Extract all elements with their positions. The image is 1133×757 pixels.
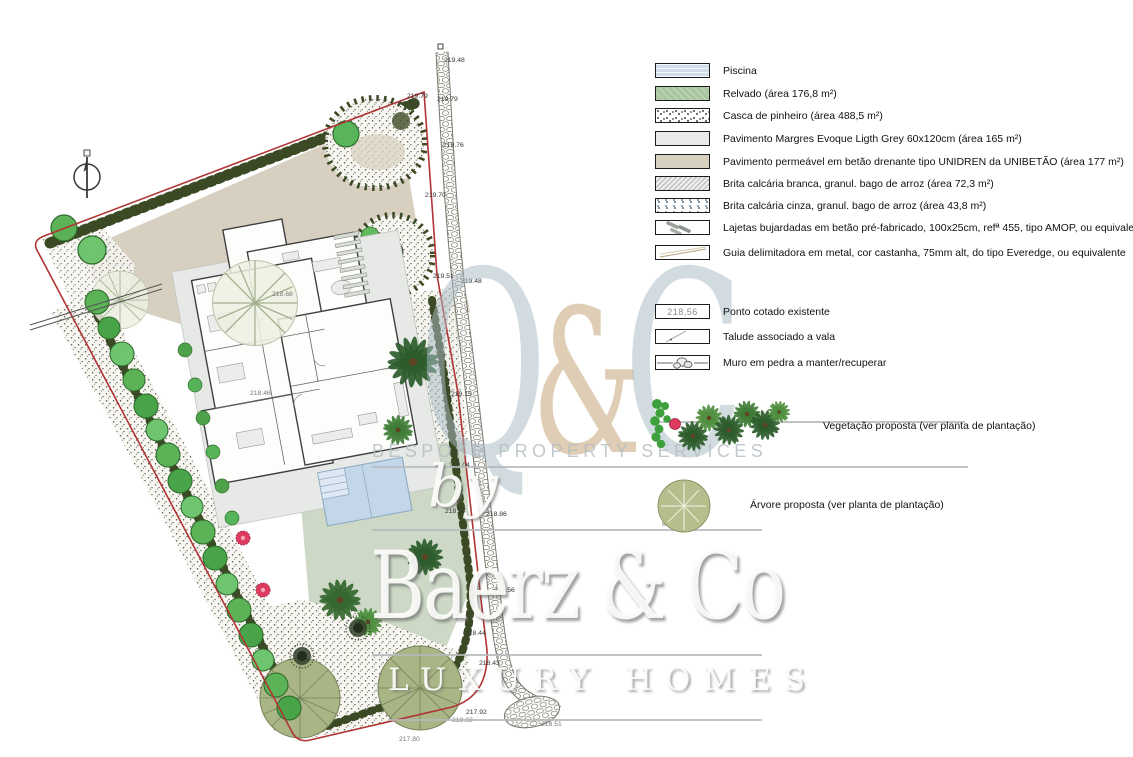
spot-elevation: 217.80	[399, 736, 420, 743]
legend-row-casca: Casca de pinheiro (área 488,5 m²)	[655, 107, 883, 124]
spot-elevation: 219.51	[433, 273, 454, 280]
legend-row-margres: Pavimento Margres Evoque Ligth Grey 60x1…	[655, 130, 1022, 147]
flower-icon	[256, 583, 270, 597]
palm-cluster-icon	[674, 396, 795, 454]
legend-label: Guia delimitadora em metal, cor castanha…	[723, 247, 1126, 259]
swatch-unidren	[655, 154, 710, 169]
spot-elevation: 219.70	[425, 192, 446, 199]
spot-elevation: 219.15	[451, 391, 472, 398]
site-plan-sheet: { "legend": { "materials": [ {"swatch": …	[0, 0, 1133, 757]
legend-label: Brita calcária cinza, granul. bago de ar…	[723, 200, 986, 212]
swatch-guia	[655, 245, 710, 260]
spot-elevation: 218.86	[486, 511, 507, 518]
swatch-piscina	[655, 63, 710, 78]
legend-label: Relvado (área 176,8 m²)	[723, 88, 837, 100]
spot-elevation: 219.48	[461, 278, 482, 285]
legend-label: Vegetação proposta (ver planta de planta…	[823, 420, 1035, 432]
swatch-brita-branca	[655, 176, 710, 191]
legend-label: Casca de pinheiro (área 488,5 m²)	[723, 110, 883, 122]
legend-row-muro: Muro em pedra a manter/recuperar	[655, 354, 886, 371]
north-compass	[74, 150, 100, 198]
spot-elevation: 218.51	[541, 721, 562, 728]
spot-elevation-sample: 218,56	[667, 307, 698, 317]
legend-row-unidren: Pavimento permeável em betão drenante ti…	[655, 153, 1124, 170]
swatch-muro-pedra	[655, 355, 710, 370]
swatch-lajetas	[655, 220, 710, 235]
vegetation-proposed-symbol	[645, 392, 805, 454]
swatch-talude	[655, 329, 710, 344]
swatch-relvado	[655, 86, 710, 101]
swatch-ponto-cotado: 218,56	[655, 304, 710, 319]
swatch-casca-pinheiro	[655, 108, 710, 123]
spot-elevation: 218.02	[452, 717, 473, 724]
olive-tree-icon	[378, 646, 462, 730]
spot-elevation: 218.56	[494, 587, 515, 594]
legend-label: Pavimento permeável em betão drenante ti…	[723, 156, 1124, 168]
tree-proposed-symbol	[654, 476, 718, 538]
swatch-brita-cinza	[655, 198, 710, 213]
spot-elevation: 219.48	[444, 57, 465, 64]
legend-row-brita-branca: Brita calcária branca, granul. bago de a…	[655, 175, 994, 192]
spot-elevation: 218.68	[272, 291, 293, 298]
spot-elevation: 218.43	[479, 660, 500, 667]
legend-label: Pavimento Margres Evoque Ligth Grey 60x1…	[723, 133, 1022, 145]
spot-elevation: 219.04	[449, 462, 470, 469]
spot-elevation: 218.44	[465, 630, 486, 637]
flower-icon	[236, 531, 250, 545]
legend-label: Piscina	[723, 65, 757, 77]
spot-elevation: 218.46	[250, 390, 271, 397]
oval-garden	[325, 98, 425, 188]
legend-label: Talude associado a vala	[723, 331, 835, 343]
legend-row-guia: Guia delimitadora em metal, cor castanha…	[655, 244, 1126, 261]
spot-elevation: 217.92	[466, 709, 487, 716]
legend-label: Muro em pedra a manter/recuperar	[723, 357, 886, 369]
spot-elevation: 219.79	[437, 96, 458, 103]
existing-tree-icon	[213, 261, 298, 346]
olive-tree-icon	[260, 658, 340, 738]
legend-row-talude: Talude associado a vala	[655, 328, 835, 345]
spot-elevation: 219.76	[443, 142, 464, 149]
legend: Piscina Relvado (área 176,8 m²) Casca de…	[655, 0, 1133, 757]
legend-row-brita-cinza: Brita calcária cinza, granul. bago de ar…	[655, 197, 986, 214]
legend-row-ponto-cotado: 218,56 Ponto cotado existente	[655, 303, 830, 320]
spot-elevation: 219.79	[407, 93, 428, 100]
legend-label: Árvore proposta (ver planta de plantação…	[750, 499, 944, 511]
legend-row-lajetas: Lajetas bujardadas em betão pré-fabricad…	[655, 219, 1133, 236]
legend-row-piscina: Piscina	[655, 62, 757, 79]
legend-label: Lajetas bujardadas em betão pré-fabricad…	[723, 222, 1133, 234]
swatch-margres	[655, 131, 710, 146]
legend-label: Brita calcária branca, granul. bago de a…	[723, 178, 994, 190]
legend-row-relvado: Relvado (área 176,8 m²)	[655, 85, 837, 102]
flower-icon	[670, 419, 681, 430]
spot-elevation: 218.57	[445, 508, 466, 515]
legend-label: Ponto cotado existente	[723, 306, 830, 318]
